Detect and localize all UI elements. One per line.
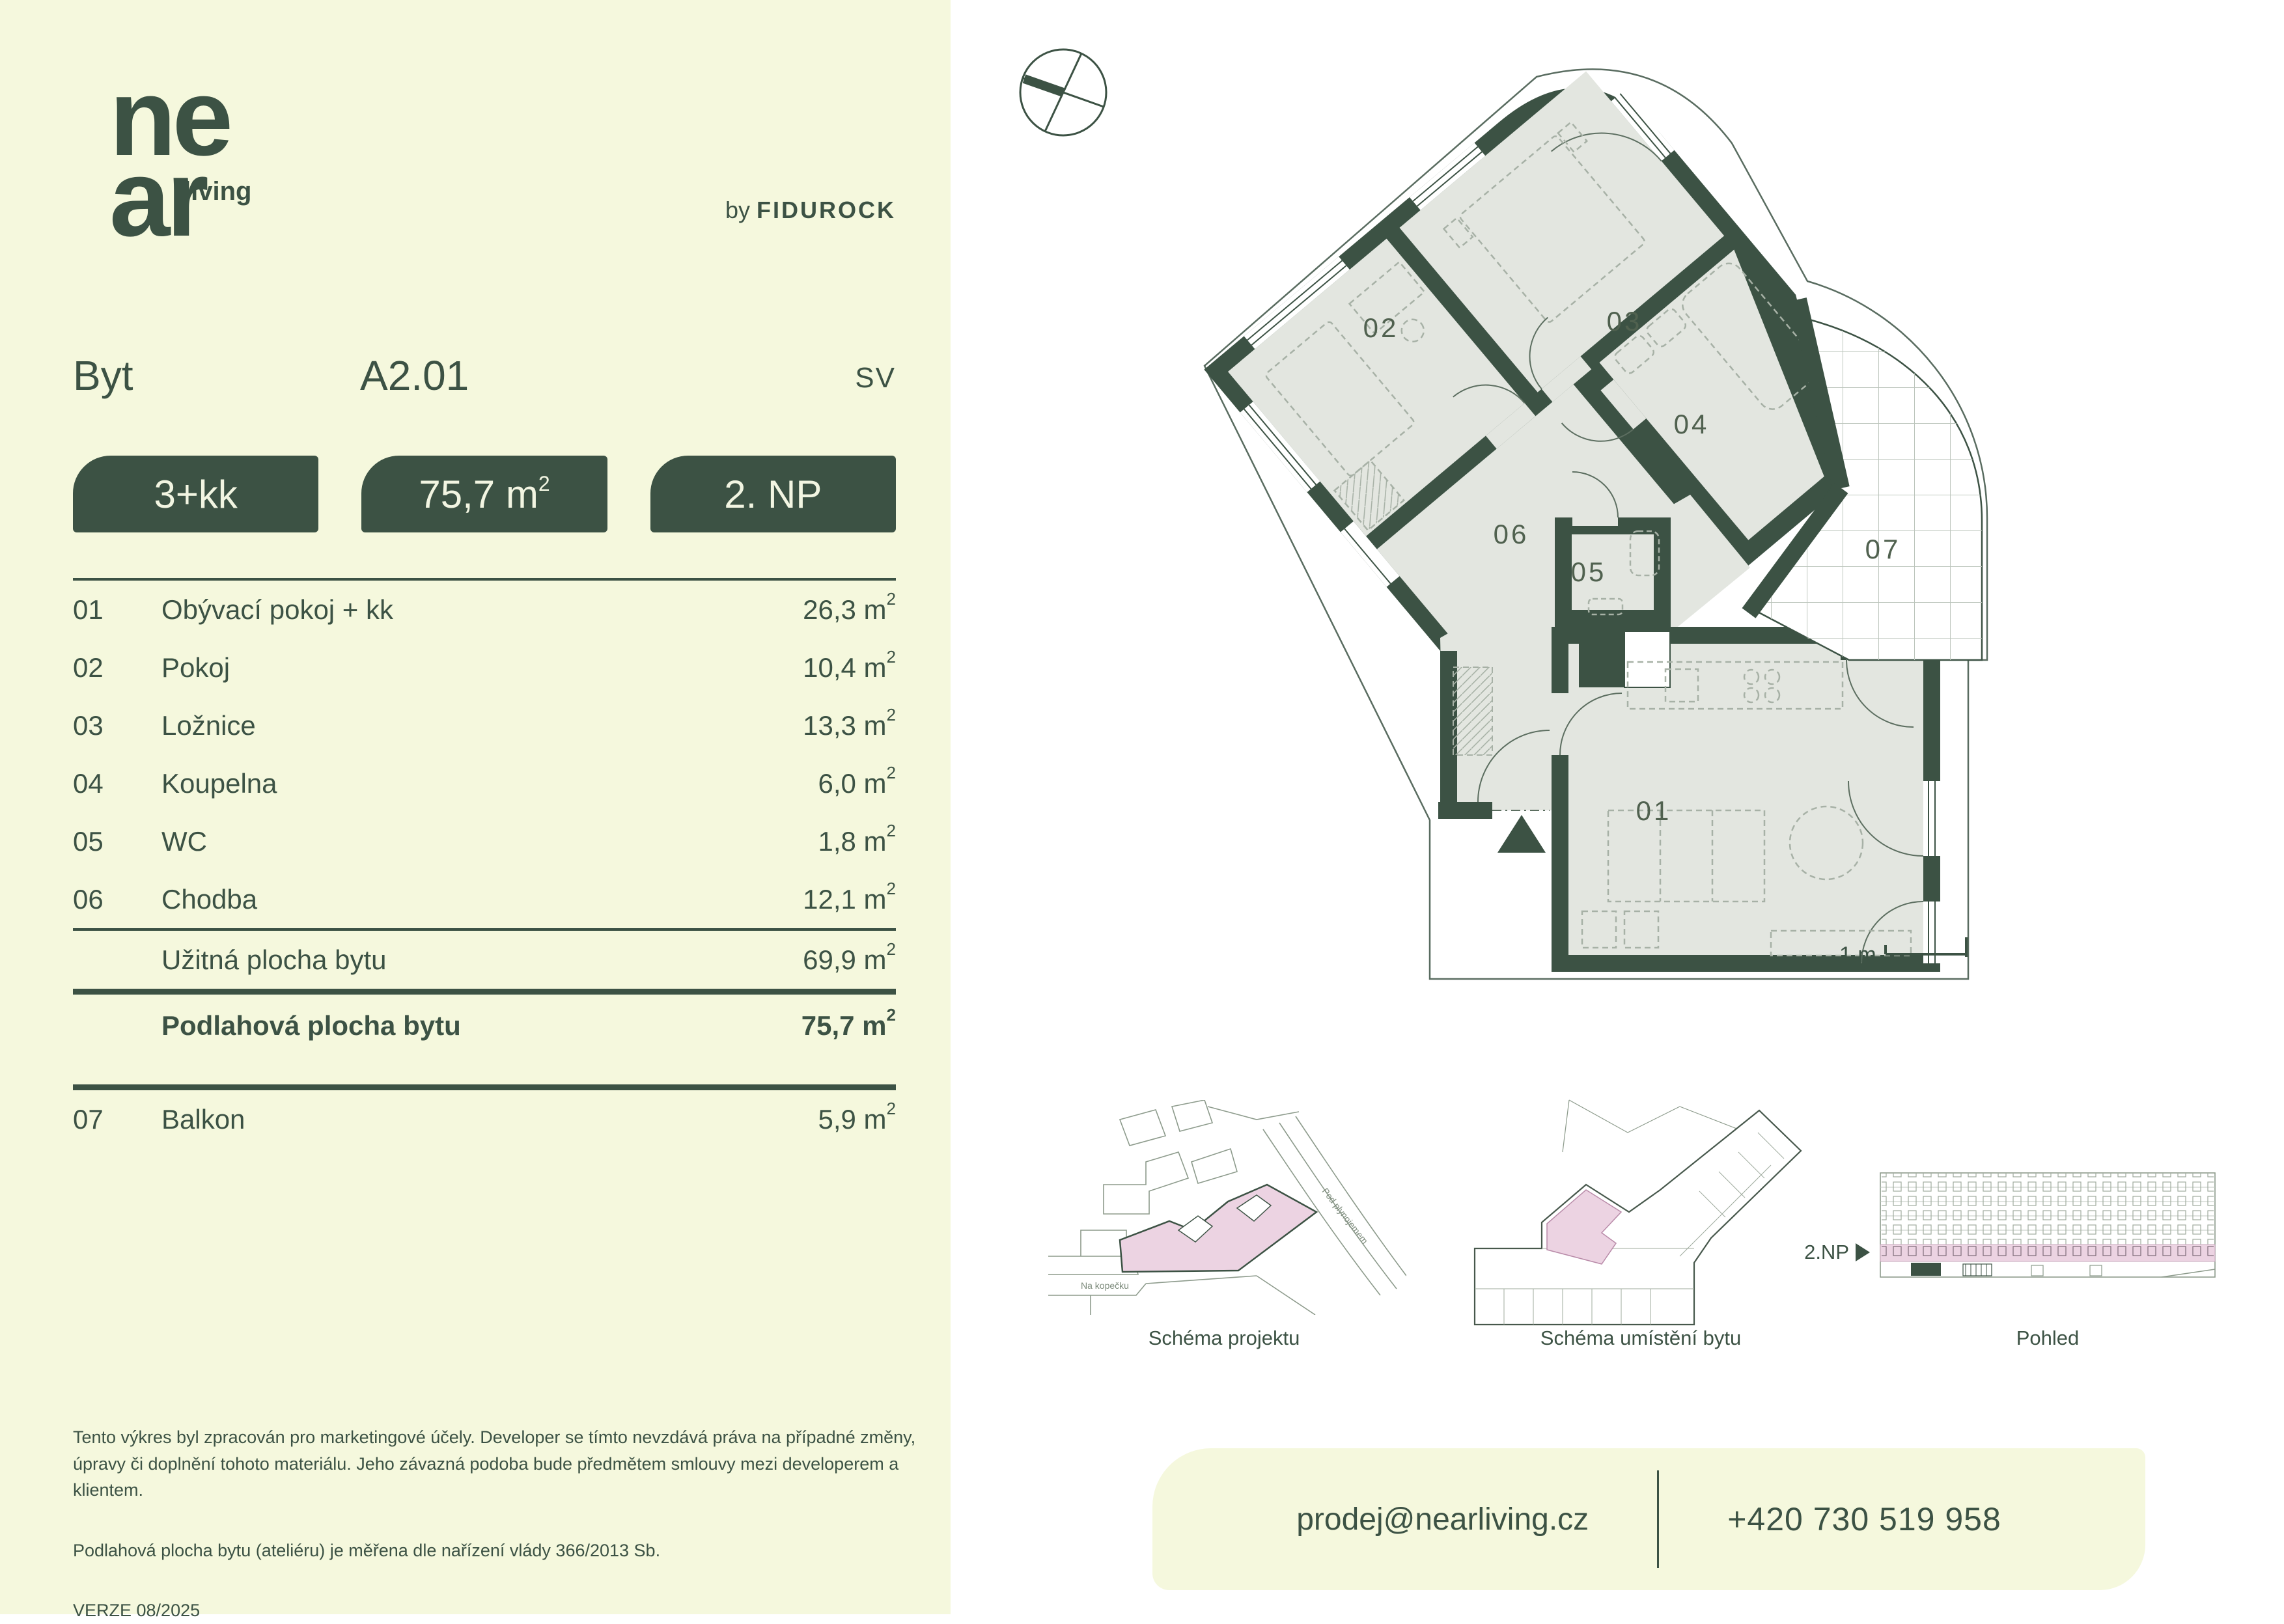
room-name: Obývací pokoj + kk <box>161 594 803 626</box>
room-number: 07 <box>73 1104 161 1135</box>
unit-badges: 3+kk 75,7 m2 2. NP <box>73 456 896 532</box>
usable-area-label: Užitná plocha bytu <box>161 944 803 976</box>
north-compass-icon <box>1011 40 1115 145</box>
table-row: 05 WC 1,8 m2 <box>73 812 896 870</box>
room-label-05: 05 <box>1571 557 1607 587</box>
contact-phone: +420 730 519 958 <box>1727 1500 2001 1538</box>
arrow-right-icon <box>1856 1243 1870 1261</box>
byline-brand: FIDUROCK <box>757 197 896 223</box>
near-living-logo: ne ar <box>109 77 229 239</box>
unit-location-caption: Schéma umístění bytu <box>1465 1327 1817 1350</box>
room-area: 12,1 m2 <box>803 884 896 915</box>
contact-divider <box>1657 1470 1659 1568</box>
room-name: Koupelna <box>161 768 818 799</box>
floor-area-value: 75,7 m2 <box>801 1010 896 1041</box>
byline-prefix: by <box>725 197 750 223</box>
room-label-07: 07 <box>1865 534 1901 564</box>
table-rule-thick <box>73 1084 896 1090</box>
table-row: 03 Ložnice 13,3 m2 <box>73 696 896 754</box>
project-schematic-caption: Schéma projektu <box>1042 1327 1406 1350</box>
room-label-01: 01 <box>1636 795 1672 826</box>
table-row: 04 Koupelna 6,0 m2 <box>73 754 896 812</box>
room-area: 26,3 m2 <box>803 594 896 626</box>
room-area: 1,8 m2 <box>818 826 896 857</box>
info-panel: ne ar living by FIDUROCK Byt A2.01 SV 3+… <box>0 0 951 1614</box>
room-number: 04 <box>73 768 161 799</box>
table-row: 01 Obývací pokoj + kk 26,3 m2 <box>73 581 896 639</box>
balcony-row: 07 Balkon 5,9 m2 <box>73 1090 896 1148</box>
room-number: 01 <box>73 594 161 626</box>
room-area: 6,0 m2 <box>818 768 896 799</box>
contact-bar: prodej@nearliving.cz +420 730 519 958 <box>1152 1448 2145 1590</box>
usable-area-value: 69,9 m2 <box>803 944 896 976</box>
room-name: Balkon <box>161 1104 818 1135</box>
floor-area-row: Podlahová plocha bytu 75,7 m2 <box>73 995 896 1057</box>
elevation-schematic <box>1875 1165 2220 1302</box>
room-name: Chodba <box>161 884 803 915</box>
badge-disposition: 3+kk <box>73 456 318 532</box>
elevation-caption: Pohled <box>1875 1327 2220 1350</box>
room-number: 06 <box>73 884 161 915</box>
floor-tag: 2.NP <box>1766 1241 1870 1264</box>
table-spacer <box>73 1057 896 1084</box>
room-area: 10,4 m2 <box>803 652 896 683</box>
room-number: 05 <box>73 826 161 857</box>
entrance-arrow-icon <box>1497 815 1546 853</box>
room-name: Ložnice <box>161 710 803 741</box>
table-rule-thick <box>73 989 896 995</box>
room-rows: 01 Obývací pokoj + kk 26,3 m2 02 Pokoj 1… <box>73 581 896 928</box>
disclaimer-text: Tento výkres byl zpracován pro marketing… <box>73 1424 919 1504</box>
usable-area-row: Užitná plocha bytu 69,9 m2 <box>73 931 896 989</box>
room-area: 5,9 m2 <box>818 1104 896 1135</box>
version-label: VERZE 08/2025 <box>73 1597 919 1624</box>
room-number: 02 <box>73 652 161 683</box>
room-table: 01 Obývací pokoj + kk 26,3 m2 02 Pokoj 1… <box>73 578 896 1148</box>
unit-header: Byt A2.01 SV <box>73 351 896 397</box>
contact-email: prodej@nearliving.cz <box>1296 1502 1589 1537</box>
room-label-04: 04 <box>1674 409 1710 439</box>
table-row: 02 Pokoj 10,4 m2 <box>73 639 896 696</box>
table-row: 06 Chodba 12,1 m2 <box>73 870 896 928</box>
disclaimer: Tento výkres byl zpracován pro marketing… <box>73 1424 919 1624</box>
floor-area-label: Podlahová plocha bytu <box>161 1010 801 1041</box>
floor-plan: 01 02 03 04 05 06 07 1 m <box>1198 65 2018 989</box>
room-name: Pokoj <box>161 652 803 683</box>
room-label-03: 03 <box>1607 306 1643 337</box>
floorplan-sheet: ne ar living by FIDUROCK Byt A2.01 SV 3+… <box>0 0 2284 1614</box>
project-schematic: Na kopečku Pod plynojemem <box>1042 1100 1406 1315</box>
unit-orientation: SV <box>855 362 896 394</box>
street-label-1: Na kopečku <box>1081 1280 1129 1291</box>
unit-location-schematic <box>1465 1094 1817 1341</box>
room-name: WC <box>161 826 818 857</box>
room-label-06: 06 <box>1494 519 1529 549</box>
room-01-living <box>1552 627 1940 963</box>
badge-floor: 2. NP <box>650 456 896 532</box>
room-area: 13,3 m2 <box>803 710 896 741</box>
measurement-note: Podlahová plocha bytu (ateliéru) je měře… <box>73 1537 919 1564</box>
unit-type-label: Byt <box>73 351 133 400</box>
unit-id: A2.01 <box>360 351 469 400</box>
room-number: 03 <box>73 710 161 741</box>
scale-label: 1 m <box>1839 943 1876 967</box>
logo-suffix: living <box>184 177 251 206</box>
developer-byline: by FIDUROCK <box>725 197 896 224</box>
room-label-02: 02 <box>1363 312 1399 343</box>
badge-area: 75,7 m2 <box>361 456 607 532</box>
